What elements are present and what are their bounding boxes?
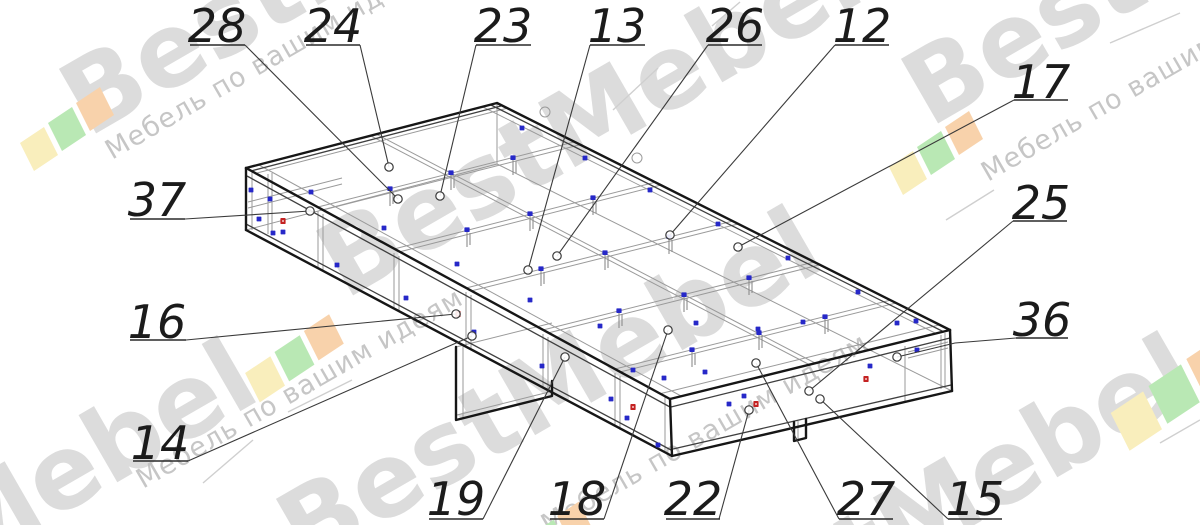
leader-end-circle — [553, 252, 561, 260]
leader-end-circle — [468, 332, 476, 340]
part-number-label: 12 — [833, 0, 892, 53]
diagram-page: BestMebelBestMebelBestMebelBestMebelBest… — [0, 0, 1200, 525]
leader-end-circle — [664, 326, 672, 334]
screw-head-blue — [822, 314, 827, 319]
part-number-label: 22 — [664, 472, 723, 525]
part-number-label: 36 — [1013, 293, 1072, 347]
screw-marker-blue — [727, 402, 732, 407]
screw-head-blue — [527, 211, 532, 216]
part-number-label: 15 — [946, 472, 1005, 525]
screw-marker-blue — [868, 364, 873, 369]
screw-marker-blue — [914, 319, 919, 324]
screw-marker-blue — [631, 368, 636, 373]
leader-end-circle — [385, 163, 393, 171]
screw-head-blue — [448, 170, 453, 175]
screw-marker-blue — [335, 263, 340, 268]
part-number-label: 25 — [1012, 176, 1071, 230]
screw-marker-blue — [520, 126, 525, 131]
screw-marker-blue — [703, 370, 708, 375]
screw-marker-blue — [609, 397, 614, 402]
screw-head-blue — [538, 266, 543, 271]
screw-marker-blue — [742, 394, 747, 399]
furniture-assembly-diagram: BestMebelBestMebelBestMebelBestMebelBest… — [0, 0, 1200, 525]
screw-marker-blue — [257, 217, 262, 222]
screw-marker-blue — [249, 188, 254, 193]
screw-marker-blue — [716, 222, 721, 227]
leader-end-circle — [524, 266, 532, 274]
screw-head-blue — [746, 275, 751, 280]
screw-marker-blue — [625, 416, 630, 421]
screw-marker-blue — [528, 298, 533, 303]
leader-end-circle — [893, 353, 901, 361]
screw-marker-blue — [801, 320, 806, 325]
screw-head-blue — [689, 347, 694, 352]
screw-head-blue — [616, 308, 621, 313]
part-number-label: 19 — [427, 472, 486, 525]
screw-marker-blue — [648, 188, 653, 193]
leader-line — [809, 221, 1013, 391]
part-number-label: 28 — [188, 0, 247, 53]
screw-head-blue — [590, 195, 595, 200]
screw-marker-blue — [856, 290, 861, 295]
leader-end-circle — [436, 192, 444, 200]
screw-marker-blue — [404, 296, 409, 301]
screw-marker-blue — [656, 443, 661, 448]
screw-marker-blue — [662, 376, 667, 381]
leader-end-circle — [666, 231, 674, 239]
part-number-label: 27 — [837, 472, 896, 525]
logo-stripe-yellow — [889, 151, 927, 195]
screw-marker-blue — [583, 156, 588, 161]
screw-marker-red-center — [865, 378, 867, 380]
leader-end-circle — [805, 387, 813, 395]
part-number-label: 13 — [588, 0, 647, 53]
part-number-label: 16 — [128, 295, 187, 349]
watermark-slash-line — [946, 190, 994, 220]
screw-marker-blue — [281, 230, 286, 235]
leader-end-circle — [816, 395, 824, 403]
leader-line — [738, 100, 1014, 247]
screw-marker-red-center — [632, 406, 634, 408]
screw-head-blue — [510, 155, 515, 160]
screw-marker-red-center — [282, 220, 284, 222]
screw-marker-blue — [382, 226, 387, 231]
frame-outline — [950, 330, 952, 391]
screw-marker-blue — [309, 190, 314, 195]
screw-marker-blue — [268, 197, 273, 202]
screw-marker-blue — [455, 262, 460, 267]
screw-head-blue — [464, 227, 469, 232]
logo-stripe-yellow — [20, 127, 58, 171]
screw-marker-blue — [895, 321, 900, 326]
leader-line — [897, 338, 1016, 357]
leader-end-circle — [561, 353, 569, 361]
screw-marker-blue — [540, 364, 545, 369]
leader-line — [360, 45, 389, 167]
callout-37: 37 — [128, 173, 314, 227]
left-end-inner — [248, 178, 342, 202]
leader-end-circle — [745, 406, 753, 414]
leader-end-circle — [306, 207, 314, 215]
screw-marker-blue — [271, 231, 276, 236]
screw-head-blue — [602, 250, 607, 255]
screw-marker-blue — [694, 321, 699, 326]
leader-end-circle — [734, 243, 742, 251]
screw-marker-red-center — [755, 403, 757, 405]
screw-marker-blue — [786, 256, 791, 261]
part-number-label: 23 — [474, 0, 533, 53]
leader-end-circle — [752, 359, 760, 367]
leader-end-circle — [394, 195, 402, 203]
screw-head-blue — [681, 292, 686, 297]
callout-36: 36 — [893, 293, 1071, 361]
screw-marker-blue — [598, 324, 603, 329]
part-number-label: 18 — [548, 472, 607, 525]
part-number-label: 26 — [706, 0, 765, 53]
leader-end-circle — [452, 310, 460, 318]
screw-marker-blue — [756, 327, 761, 332]
part-number-label: 37 — [128, 173, 187, 227]
part-number-label: 14 — [131, 416, 190, 470]
part-number-label: 24 — [304, 0, 363, 53]
part-number-label: 17 — [1012, 55, 1071, 109]
